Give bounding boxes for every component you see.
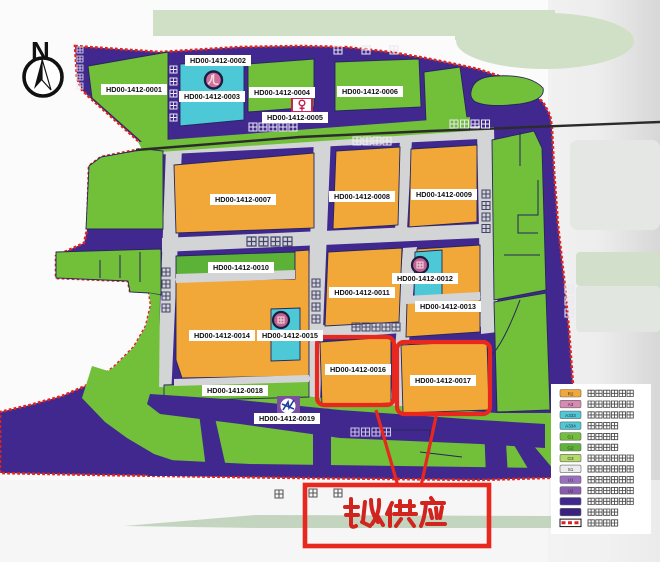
- svg-text:G3: G3: [567, 456, 574, 461]
- svg-text:HD00-1412-0008: HD00-1412-0008: [334, 192, 390, 201]
- svg-text:HD00-1412-0017: HD00-1412-0017: [415, 376, 471, 385]
- svg-text:HD00-1412-0012: HD00-1412-0012: [397, 274, 453, 283]
- svg-text:A334: A334: [565, 424, 576, 429]
- svg-text:A333: A333: [565, 413, 576, 418]
- svg-text:HD00-1412-0014: HD00-1412-0014: [194, 331, 251, 340]
- svg-text:HD00-1412-0009: HD00-1412-0009: [416, 190, 472, 199]
- svg-text:U2: U2: [568, 489, 574, 494]
- svg-text:HD00-1412-0001: HD00-1412-0001: [106, 85, 162, 94]
- svg-text:HD00-1412-0003: HD00-1412-0003: [184, 92, 240, 101]
- svg-text:A3: A3: [568, 402, 574, 407]
- svg-text:HD00-1412-0005: HD00-1412-0005: [267, 113, 323, 122]
- svg-text:S1: S1: [568, 467, 574, 472]
- svg-text:HD00-1412-0016: HD00-1412-0016: [330, 365, 386, 374]
- svg-text:G2: G2: [567, 445, 574, 450]
- svg-text:HD00-1412-0004: HD00-1412-0004: [254, 88, 311, 97]
- svg-text:G1: G1: [567, 435, 574, 440]
- svg-text:HD00-1412-0019: HD00-1412-0019: [259, 414, 315, 423]
- svg-text:HD00-1412-0006: HD00-1412-0006: [342, 87, 398, 96]
- svg-text:U1: U1: [568, 478, 574, 483]
- svg-text:HD00-1412-0002: HD00-1412-0002: [190, 56, 246, 65]
- svg-text:HD00-1412-0013: HD00-1412-0013: [420, 302, 476, 311]
- svg-text:HD00-1412-0007: HD00-1412-0007: [215, 195, 271, 204]
- svg-text:HD00-1412-0015: HD00-1412-0015: [262, 331, 318, 340]
- svg-text:HD00-1412-0010: HD00-1412-0010: [213, 263, 269, 272]
- svg-text:HD00-1412-0011: HD00-1412-0011: [334, 288, 390, 297]
- svg-text:HD00-1412-0018: HD00-1412-0018: [207, 386, 263, 395]
- svg-text:R2: R2: [568, 391, 574, 396]
